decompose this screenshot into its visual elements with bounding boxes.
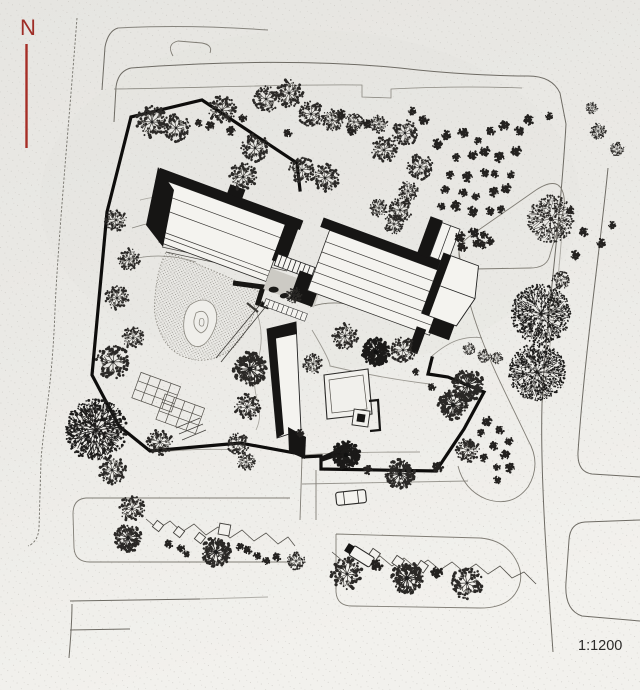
- svg-text:1:1200: 1:1200: [578, 638, 622, 654]
- svg-text:N: N: [20, 15, 36, 40]
